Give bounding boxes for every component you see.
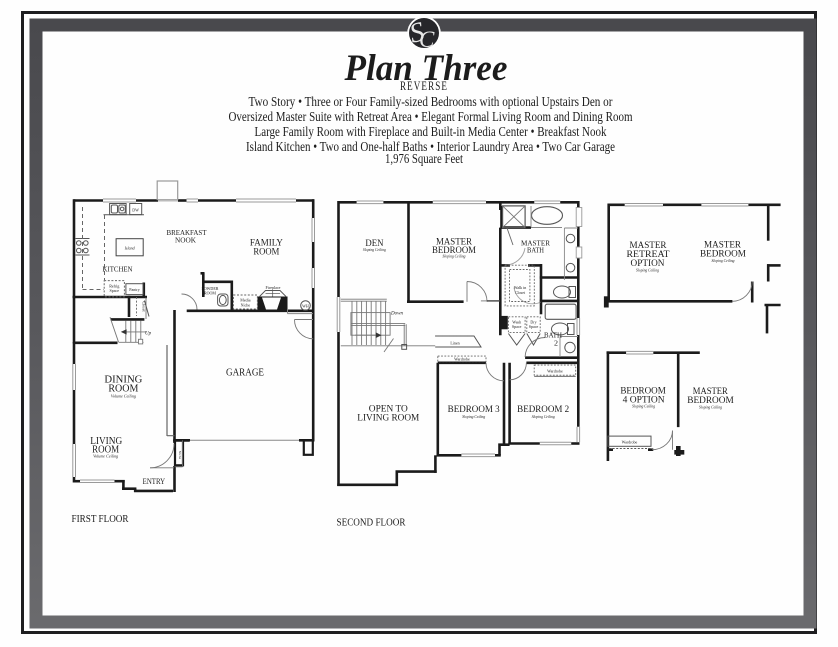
svg-text:Space: Space <box>529 324 539 329</box>
svg-text:Space: Space <box>512 324 522 329</box>
svg-text:FIRST FLOOR: FIRST FLOOR <box>72 513 130 525</box>
svg-text:ROOM: ROOM <box>204 291 216 296</box>
svg-text:Two Story • Three or Four Fami: Two Story • Three or Four Family-sized B… <box>249 95 613 110</box>
svg-text:Sloping Ceiling: Sloping Ceiling <box>443 254 467 259</box>
svg-text:Sloping Ceiling: Sloping Ceiling <box>632 404 656 409</box>
svg-text:BEDROOM 3: BEDROOM 3 <box>448 404 500 414</box>
svg-text:REVERSE: REVERSE <box>400 79 448 93</box>
svg-text:GARAGE: GARAGE <box>226 368 264 379</box>
svg-text:WH: WH <box>302 304 309 309</box>
svg-text:ENTRY: ENTRY <box>143 477 166 486</box>
svg-text:Down: Down <box>390 312 403 317</box>
svg-text:KITCHEN: KITCHEN <box>103 265 134 274</box>
svg-text:Sloping Ceiling: Sloping Ceiling <box>363 247 387 252</box>
svg-text:Sloping Ceiling: Sloping Ceiling <box>699 405 723 410</box>
svg-text:NOOK: NOOK <box>175 236 197 245</box>
svg-text:Sloping Ceiling: Sloping Ceiling <box>636 268 660 273</box>
svg-text:Sloping Ceiling: Sloping Ceiling <box>462 414 486 419</box>
svg-text:Volume Ceiling: Volume Ceiling <box>111 394 137 399</box>
svg-text:Niche: Niche <box>178 451 182 460</box>
svg-text:ROOM: ROOM <box>253 247 279 257</box>
svg-text:BEDROOM 2: BEDROOM 2 <box>517 404 569 414</box>
svg-text:1,976 Square Feet: 1,976 Square Feet <box>385 152 463 167</box>
svg-text:Sloping Ceiling: Sloping Ceiling <box>712 258 736 263</box>
svg-text:Fireplace: Fireplace <box>266 285 281 290</box>
svg-text:Sloping Ceiling: Sloping Ceiling <box>532 414 556 419</box>
svg-text:Volume Ceiling: Volume Ceiling <box>93 454 119 459</box>
svg-text:Linen: Linen <box>450 341 459 346</box>
svg-text:Island: Island <box>124 246 136 251</box>
svg-text:DW: DW <box>132 208 139 213</box>
svg-text:BATH: BATH <box>527 246 544 255</box>
svg-text:Wardrobe: Wardrobe <box>547 369 563 374</box>
svg-text:Space: Space <box>110 288 120 293</box>
svg-text:Niche: Niche <box>241 303 251 308</box>
svg-text:SECOND FLOOR: SECOND FLOOR <box>337 517 407 529</box>
svg-text:Wardrobe: Wardrobe <box>454 357 470 362</box>
svg-text:Pantry: Pantry <box>129 287 139 292</box>
svg-text:Up: Up <box>145 332 152 337</box>
svg-text:Large Family Room with Firepla: Large Family Room with Fireplace and Bui… <box>255 125 607 140</box>
svg-text:LIVING ROOM: LIVING ROOM <box>357 414 420 424</box>
svg-text:Wardrobe: Wardrobe <box>622 440 638 445</box>
svg-text:Closet: Closet <box>142 301 147 312</box>
svg-text:2: 2 <box>554 339 558 348</box>
svg-text:Oversized Master Suite with Re: Oversized Master Suite with Retreat Area… <box>229 110 633 125</box>
